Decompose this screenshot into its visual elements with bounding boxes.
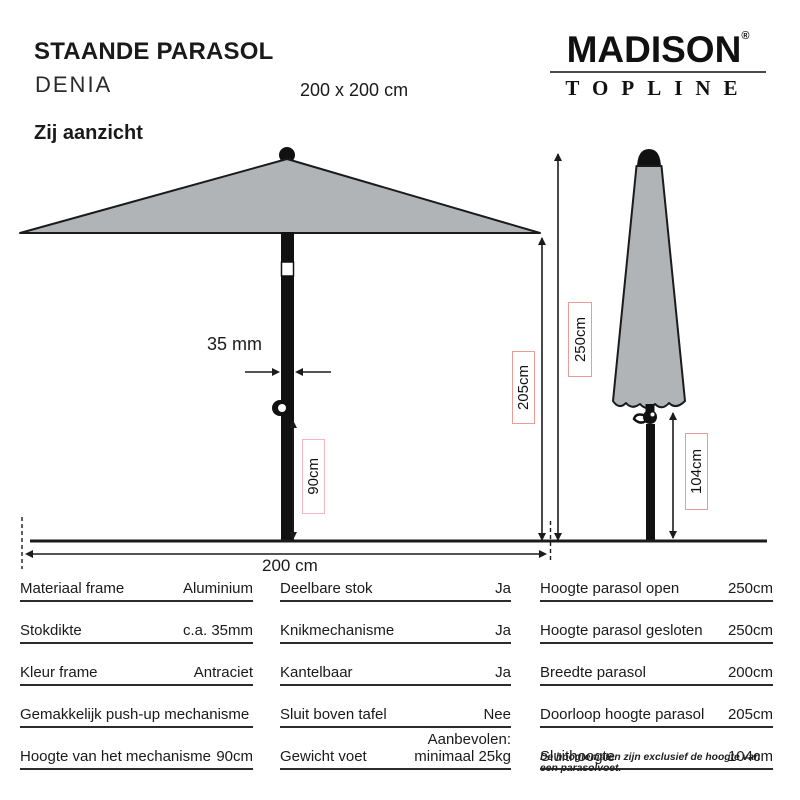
closed-bottom-height-label: 104cm bbox=[685, 433, 708, 510]
arrowhead-up-icon bbox=[669, 412, 677, 420]
pole-closed bbox=[646, 424, 655, 541]
table-row: Deelbare stok Ja bbox=[280, 577, 511, 602]
pole-open bbox=[281, 232, 294, 541]
pole-thickness-label: 35 mm bbox=[207, 334, 262, 355]
arrowhead-right-icon bbox=[272, 368, 280, 376]
arrowhead-right-icon bbox=[539, 550, 547, 558]
arrowhead-up-icon bbox=[538, 237, 546, 245]
spec-label: Gemakkelijk push-up mechanisme bbox=[20, 706, 249, 723]
table-row: Gemakkelijk push-up mechanisme bbox=[20, 686, 253, 728]
table-row: Gewicht voet Aanbevolen: minimaal 25kg bbox=[280, 728, 511, 770]
height-disclaimer-note: De hoogtematen zijn exclusief de hoogte … bbox=[540, 752, 773, 774]
runner-slider bbox=[282, 262, 294, 276]
spec-value: 205cm bbox=[728, 707, 773, 724]
spec-column-frame: Materiaal frame Aluminium Stokdikte c.a.… bbox=[20, 577, 253, 770]
spec-value: Antraciet bbox=[194, 665, 253, 682]
spec-value: 90cm bbox=[216, 749, 253, 766]
table-row: Breedte parasol 200cm bbox=[540, 644, 773, 686]
spec-label: Hoogte van het mechanisme bbox=[20, 748, 211, 765]
spec-value: Aluminium bbox=[183, 581, 253, 598]
table-row: Kantelbaar Ja bbox=[280, 644, 511, 686]
spec-value: Ja bbox=[495, 581, 511, 598]
table-row: Hoogte van het mechanisme 90cm bbox=[20, 728, 253, 770]
table-row: Stokdikte c.a. 35mm bbox=[20, 602, 253, 644]
mechanism-height-label: 90cm bbox=[302, 439, 325, 514]
arrowhead-up-icon bbox=[554, 153, 562, 161]
spec-label: Materiaal frame bbox=[20, 580, 124, 597]
spec-value: Aanbevolen: minimaal 25kg bbox=[414, 732, 511, 765]
table-row: Materiaal frame Aluminium bbox=[20, 577, 253, 602]
arrowhead-down-icon bbox=[669, 531, 677, 539]
spec-value: Ja bbox=[495, 623, 511, 640]
spec-column-mechanism: Deelbare stok Ja Knikmechanisme Ja Kante… bbox=[280, 577, 511, 770]
spec-value: 200cm bbox=[728, 665, 773, 682]
spec-value: c.a. 35mm bbox=[183, 623, 253, 640]
table-row: Sluit boven tafel Nee bbox=[280, 686, 511, 728]
spec-value: 250cm bbox=[728, 581, 773, 598]
walkthrough-height-label: 205cm bbox=[512, 351, 535, 424]
table-row: Kleur frame Antraciet bbox=[20, 644, 253, 686]
spec-label: Kantelbaar bbox=[280, 664, 353, 681]
spec-sheet-page: STAANDE PARASOL DENIA 200 x 200 cm MADIS… bbox=[0, 0, 800, 800]
arrowhead-left-icon bbox=[295, 368, 303, 376]
spec-label: Gewicht voet bbox=[280, 748, 367, 765]
spec-value: 250cm bbox=[728, 623, 773, 640]
spec-label: Hoogte parasol gesloten bbox=[540, 622, 703, 639]
table-row: Hoogte parasol open 250cm bbox=[540, 577, 773, 602]
width-label: 200 cm bbox=[262, 556, 318, 576]
open-height-label: 250cm bbox=[568, 302, 592, 377]
table-row: Knikmechanisme Ja bbox=[280, 602, 511, 644]
closed-canopy bbox=[613, 166, 685, 408]
spec-label: Kleur frame bbox=[20, 664, 98, 681]
spec-value: Ja bbox=[495, 665, 511, 682]
spec-label: Hoogte parasol open bbox=[540, 580, 679, 597]
spec-column-heights: Hoogte parasol open 250cm Hoogte parasol… bbox=[540, 577, 773, 770]
spec-label: Sluit boven tafel bbox=[280, 706, 387, 723]
table-row: Doorloop hoogte parasol 205cm bbox=[540, 686, 773, 728]
spec-value: Nee bbox=[483, 707, 511, 724]
tie-knob bbox=[643, 410, 657, 424]
open-canopy bbox=[20, 159, 540, 233]
spec-label: Doorloop hoogte parasol bbox=[540, 706, 704, 723]
spec-label: Stokdikte bbox=[20, 622, 82, 639]
spec-label: Breedte parasol bbox=[540, 664, 646, 681]
tie-knob-highlight bbox=[651, 413, 655, 417]
spec-label: Deelbare stok bbox=[280, 580, 373, 597]
spec-label: Knikmechanisme bbox=[280, 622, 394, 639]
push-button bbox=[278, 404, 286, 412]
arrowhead-left-icon bbox=[25, 550, 33, 558]
table-row: Hoogte parasol gesloten 250cm bbox=[540, 602, 773, 644]
